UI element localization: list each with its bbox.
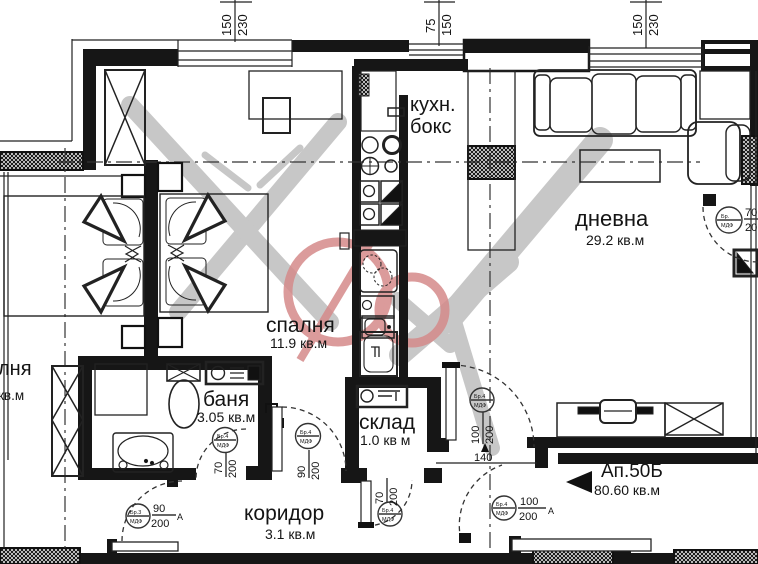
svg-text:МДФ: МДФ xyxy=(474,403,486,409)
svg-text:склад: склад xyxy=(359,411,415,434)
svg-text:3.1 кв.м: 3.1 кв.м xyxy=(265,526,315,542)
svg-text:Бр.4: Бр.4 xyxy=(300,430,311,436)
svg-text:МДФ: МДФ xyxy=(496,511,508,517)
svg-text:МДФ: МДФ xyxy=(382,517,394,523)
svg-text:кв.м: кв.м xyxy=(0,388,24,403)
svg-text:Бр.: Бр. xyxy=(721,214,730,220)
svg-text:Бр.4: Бр.4 xyxy=(217,434,228,440)
svg-text:200: 200 xyxy=(519,511,537,523)
svg-text:Бр.4: Бр.4 xyxy=(474,394,485,400)
svg-text:МДФ: МДФ xyxy=(130,519,142,525)
svg-text:90: 90 xyxy=(153,503,165,515)
svg-text:11.9 кв.м: 11.9 кв.м xyxy=(270,335,327,351)
svg-text:90: 90 xyxy=(296,466,308,478)
svg-text:200: 200 xyxy=(388,488,400,506)
svg-text:Бр.3: Бр.3 xyxy=(130,510,141,516)
svg-text:бокс: бокс xyxy=(410,116,452,138)
svg-text:20: 20 xyxy=(745,222,757,234)
svg-text:70: 70 xyxy=(213,462,225,474)
svg-text:3.05 кв.м: 3.05 кв.м xyxy=(197,409,255,425)
svg-text:200: 200 xyxy=(151,518,169,530)
svg-text:100: 100 xyxy=(470,426,482,444)
svg-text:230: 230 xyxy=(235,14,250,36)
svg-text:70: 70 xyxy=(374,492,386,504)
svg-text:Бр.4: Бр.4 xyxy=(496,502,507,508)
svg-text:МДФ: МДФ xyxy=(300,439,312,445)
svg-text:230: 230 xyxy=(646,14,661,36)
svg-text:кухн.: кухн. xyxy=(410,94,456,116)
svg-text:баня: баня xyxy=(203,388,249,411)
svg-text:150: 150 xyxy=(219,14,234,36)
svg-text:200: 200 xyxy=(484,426,496,444)
svg-text:МДФ: МДФ xyxy=(217,443,229,449)
svg-text:Ап.50Б: Ап.50Б xyxy=(601,461,663,482)
svg-text:200: 200 xyxy=(310,462,322,480)
svg-text:200: 200 xyxy=(227,460,239,478)
svg-text:А: А xyxy=(177,512,183,522)
svg-text:150: 150 xyxy=(630,14,645,36)
svg-text:А: А xyxy=(548,506,554,516)
svg-text:100: 100 xyxy=(520,496,538,508)
svg-text:29.2 кв.м: 29.2 кв.м xyxy=(586,232,644,248)
svg-text:1.0 кв м: 1.0 кв м xyxy=(360,432,410,448)
svg-text:150: 150 xyxy=(439,14,454,36)
svg-text:лня: лня xyxy=(0,358,32,380)
svg-text:коридор: коридор xyxy=(244,502,324,525)
svg-text:70: 70 xyxy=(745,207,757,219)
svg-text:МДФ: МДФ xyxy=(721,223,733,229)
svg-text:дневна: дневна xyxy=(575,206,649,231)
svg-text:Бр.4: Бр.4 xyxy=(382,508,393,514)
svg-text:спалня: спалня xyxy=(266,314,335,337)
svg-text:75: 75 xyxy=(423,19,438,33)
svg-text:140: 140 xyxy=(474,452,492,464)
svg-text:80.60 кв.м: 80.60 кв.м xyxy=(594,482,660,498)
